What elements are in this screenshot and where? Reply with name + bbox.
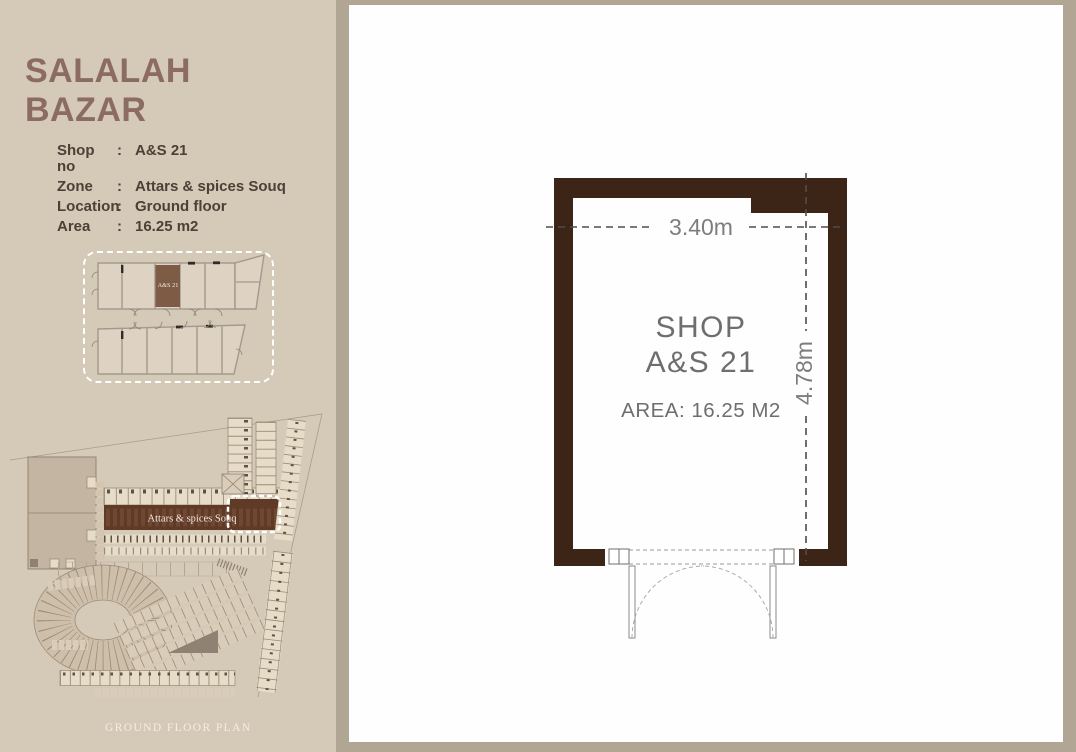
shop-title-line1: SHOP [655, 311, 746, 344]
detail-colon: : [117, 199, 131, 215]
detail-value-area: 16.25 m2 [135, 219, 286, 235]
detail-value-location: Ground floor [135, 199, 286, 215]
inset-plan-drawing: A&S 21 [85, 253, 272, 381]
shop-title-line2: A&S 21 [646, 346, 757, 379]
main-panel: 3.40m 4.78m SHOP A&S 21 AREA: 16.25 M2 [349, 5, 1063, 742]
page-title: SALALAH BAZAR [25, 52, 336, 130]
inset-highlight-shop-label: A&S 21 [158, 282, 179, 289]
width-dimension: 3.40m [546, 214, 844, 240]
shop-floor-plan: 3.40m 4.78m SHOP A&S 21 AREA: 16.25 M2 [541, 165, 861, 655]
shop-details-list: Shop no:A&S 21 Zone:Attars & spices Souq… [57, 143, 286, 235]
ground-floor-plan-label: GROUND FLOOR PLAN [105, 722, 251, 734]
entrance-doors [609, 549, 794, 638]
width-dimension-label: 3.40m [669, 214, 733, 240]
detail-label: Shop no [57, 143, 113, 175]
height-dimension: 4.78m [791, 173, 817, 561]
detail-label: Location [57, 199, 113, 215]
site-zone-band-label: Attars & spices Souq [148, 514, 238, 525]
detail-label: Zone [57, 179, 113, 195]
detail-value-zone: Attars & spices Souq [135, 179, 286, 195]
sidebar: SALALAH BAZAR Shop no:A&S 21 Zone:Attars… [0, 0, 336, 752]
detail-colon: : [117, 179, 131, 195]
detail-label: Area [57, 219, 113, 235]
detail-colon: : [117, 219, 131, 235]
height-dimension-label: 4.78m [791, 341, 817, 405]
page: { "title": "SALALAH BAZAR", "details": {… [0, 0, 1076, 752]
detail-value-shop-no: A&S 21 [135, 143, 286, 175]
inset-plan-highlight-box: A&S 21 [83, 251, 274, 383]
shop-area-label: AREA: 16.25 M2 [621, 399, 781, 422]
site-plan-drawing: Attars & spices Souq [0, 402, 336, 702]
detail-colon: : [117, 143, 131, 175]
